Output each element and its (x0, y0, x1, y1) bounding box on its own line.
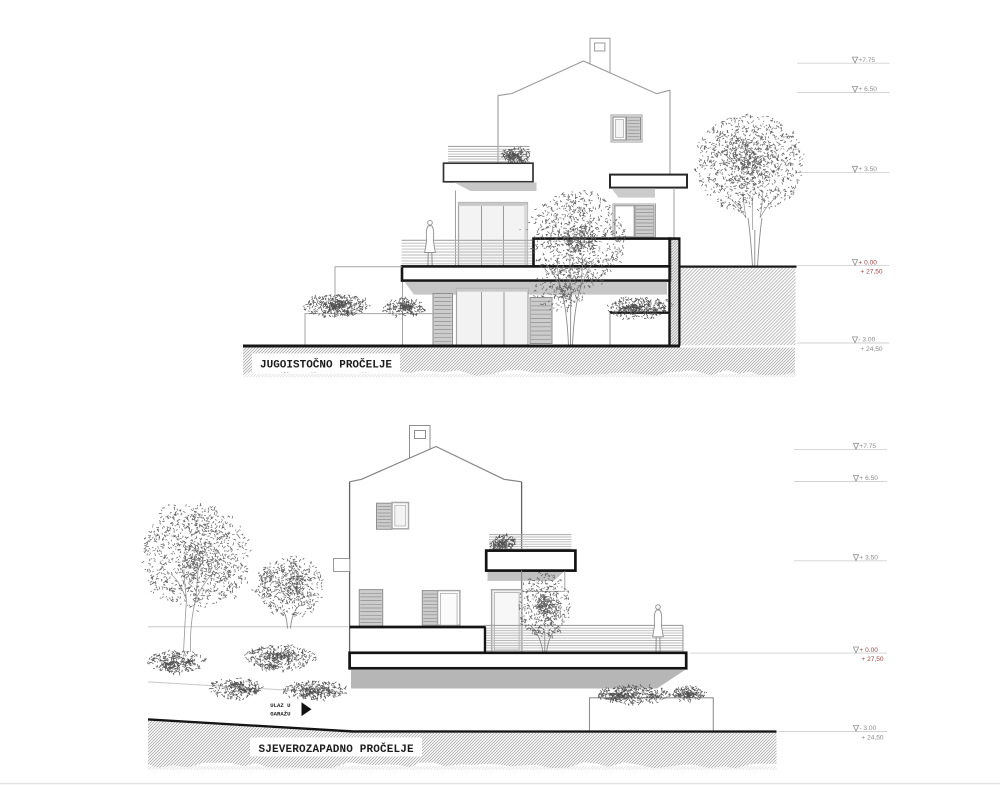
svg-text:+ 24,50: + 24,50 (861, 735, 884, 742)
svg-text:SJEVEROZAPADNO PROČELJE: SJEVEROZAPADNO PROČELJE (259, 742, 415, 756)
svg-text:JUGOISTOČNO PROČELJE: JUGOISTOČNO PROČELJE (260, 358, 392, 372)
svg-text:+ 27,50: + 27,50 (861, 656, 884, 663)
svg-text:+ 0.00: + 0.00 (858, 259, 877, 266)
svg-text:+7.75: +7.75 (858, 57, 875, 64)
svg-text:+ 0.00: + 0.00 (859, 647, 878, 654)
svg-text:GARAŽU: GARAŽU (270, 711, 290, 718)
svg-text:+ 6.50: + 6.50 (858, 86, 877, 93)
svg-text:+ 24,50: + 24,50 (860, 346, 883, 353)
svg-text:- 3.00: - 3.00 (858, 337, 875, 344)
svg-text:+ 6.50: + 6.50 (859, 475, 878, 482)
svg-text:+ 27,50: + 27,50 (860, 269, 883, 276)
svg-text:- 3.00: - 3.00 (859, 725, 876, 732)
svg-text:ULAZ U: ULAZ U (270, 702, 290, 709)
svg-text:+7.75: +7.75 (859, 443, 876, 450)
svg-text:+ 3.50: + 3.50 (859, 555, 878, 562)
svg-text:+ 3.50: + 3.50 (858, 166, 877, 173)
